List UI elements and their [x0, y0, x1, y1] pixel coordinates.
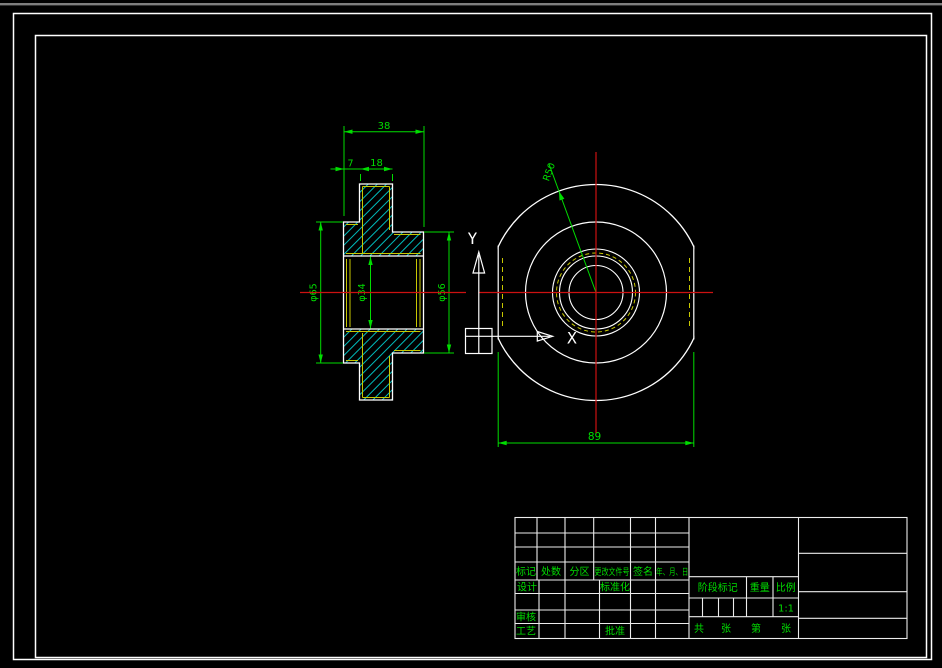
section-hatch-bottom [344, 329, 424, 400]
header-zone: 分区 [570, 566, 590, 578]
drawing-canvas[interactable]: 38 7 18 φ65 φ34 [0, 0, 942, 668]
scale-value: 1:1 [778, 604, 794, 615]
dim-total-length-text: 38 [378, 121, 391, 132]
label-check: 审核 [516, 611, 536, 624]
label-scale: 比例 [776, 581, 796, 594]
section-hatch-top [344, 184, 424, 256]
label-weight: 重量 [750, 581, 770, 594]
dim-hub-length-text: 18 [370, 158, 383, 169]
header-change-file-no: 更改文件号 [595, 566, 630, 578]
ucs-y-label: Y [468, 229, 478, 248]
label-sheet-page: 第 [751, 622, 761, 635]
header-count: 处数 [541, 565, 561, 578]
label-process: 工艺 [516, 626, 536, 638]
label-design: 设计 [517, 581, 537, 594]
cad-application-window: 38 7 18 φ65 φ34 [0, 0, 942, 668]
window-top-edge [0, 3, 942, 5]
dim-left-step-text: 7 [347, 159, 353, 170]
label-standardization: 标准化 [600, 581, 630, 594]
dim-radius-text: R50 [541, 161, 558, 182]
sheet-inner-border [36, 36, 927, 658]
header-signature: 签名 [633, 565, 653, 578]
label-stage-mark: 阶段标记 [698, 581, 738, 594]
ucs-icon: Y X [466, 229, 578, 354]
label-sheet-total-unit: 张 [721, 623, 731, 635]
label-sheet-page-unit: 张 [781, 623, 791, 635]
header-mark: 标记 [516, 566, 536, 578]
dim-across-flats-text: 89 [588, 431, 601, 443]
header-date: 年、月、日 [656, 566, 688, 578]
ucs-x-label: X [567, 329, 577, 348]
label-sheet-total: 共 [694, 623, 704, 635]
title-block: 标记 处数 分区 更改文件号 签名 年、月、日 设计 标准化 审核 工艺 批准 … [515, 518, 907, 639]
label-approve: 批准 [605, 625, 625, 638]
dim-step-lengths: 7 18 [331, 158, 393, 181]
title-block-grid [515, 518, 907, 639]
